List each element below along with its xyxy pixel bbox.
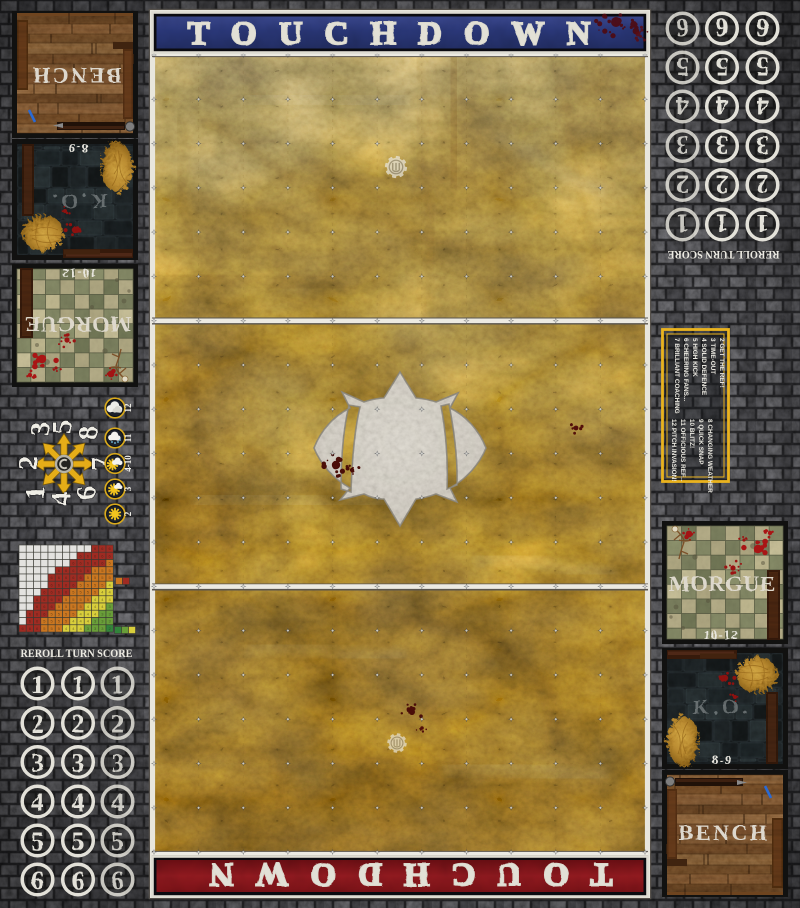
svg-text:6: 6 [72, 866, 85, 895]
svg-text:5: 5 [72, 827, 85, 856]
svg-text:TOUCHDOWN: TOUCHDOWN [188, 16, 613, 52]
svg-text:2 GET THE REF!: 2 GET THE REF! [718, 338, 725, 388]
svg-text:2: 2 [31, 709, 44, 738]
svg-text:4 SOLID DEFENCE: 4 SOLID DEFENCE [700, 338, 707, 396]
svg-text:3: 3 [31, 748, 44, 777]
svg-text:11: 11 [123, 433, 133, 442]
svg-text:8 CHANGING WEATHER: 8 CHANGING WEATHER [706, 419, 713, 493]
svg-text:2: 2 [13, 456, 43, 470]
svg-text:1: 1 [31, 670, 44, 699]
svg-text:9 QUICK SNAP: 9 QUICK SNAP [697, 419, 704, 465]
svg-text:3 TIME-OUT: 3 TIME-OUT [709, 338, 716, 374]
svg-text:4: 4 [31, 788, 44, 817]
svg-text:BENCH: BENCH [679, 820, 770, 845]
svg-text:2: 2 [123, 511, 133, 516]
svg-text:2: 2 [111, 709, 124, 738]
svg-text:12 PITCH INVASION!: 12 PITCH INVASION! [670, 419, 677, 481]
svg-text:3: 3 [72, 748, 85, 777]
svg-text:10 BLITZ!: 10 BLITZ! [688, 419, 695, 448]
svg-text:1: 1 [72, 670, 85, 699]
svg-text:5: 5 [111, 827, 124, 856]
svg-text:6: 6 [111, 866, 124, 895]
svg-text:5 HIGH KICK: 5 HIGH KICK [691, 338, 698, 377]
svg-text:3: 3 [111, 748, 124, 777]
svg-text:12: 12 [123, 403, 133, 413]
svg-text:TOUCHDOWN: TOUCHDOWN [188, 856, 613, 892]
svg-text:K.O.: K.O. [692, 695, 751, 719]
svg-text:8: 8 [73, 426, 103, 440]
svg-text:5: 5 [31, 827, 44, 856]
svg-text:4: 4 [111, 788, 124, 817]
svg-text:8-9: 8-9 [712, 752, 732, 767]
svg-text:10-12: 10-12 [703, 627, 738, 642]
svg-text:11 OFFICIOUS REF...: 11 OFFICIOUS REF... [679, 419, 686, 482]
svg-text:REROLL TURN SCORE: REROLL TURN SCORE [21, 646, 133, 660]
svg-text:6 CHEERING FANS...: 6 CHEERING FANS... [682, 338, 689, 401]
svg-text:4: 4 [72, 788, 85, 817]
svg-text:7 BRILLIANT COACHING: 7 BRILLIANT COACHING [673, 338, 680, 414]
svg-text:6: 6 [31, 866, 44, 895]
svg-text:3: 3 [123, 486, 133, 491]
svg-text:MORGUE: MORGUE [669, 571, 776, 596]
svg-text:2: 2 [72, 709, 85, 738]
svg-text:1: 1 [111, 670, 124, 699]
svg-text:6: 6 [71, 486, 101, 500]
svg-text:4-10: 4-10 [123, 455, 133, 472]
